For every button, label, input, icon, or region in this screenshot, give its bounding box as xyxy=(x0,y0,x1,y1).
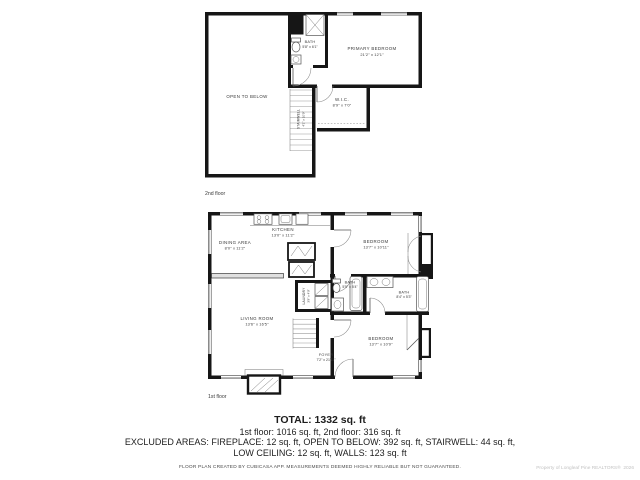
room-dims-dining: 8'0" x 11'2" xyxy=(225,246,246,251)
room-label-bath-center: BATH xyxy=(345,281,356,285)
floor-label-2nd: 2nd floor xyxy=(205,191,225,197)
floor-areas-text: 1st floor: 1016 sq. ft, 2nd floor: 316 s… xyxy=(0,427,640,438)
room-label-wic: W.I.C. xyxy=(335,97,349,102)
watermark-text: Property of Longleaf Pine REALTORS® 2026 xyxy=(536,466,634,471)
room-label-bedroom-top: BEDROOM xyxy=(363,239,388,244)
room-label-dining: DINING AREA xyxy=(219,240,251,245)
floor-plan-1st-floor: KITCHEN 13'0" x 11'2" DINING AREA 8'0" x… xyxy=(195,200,445,410)
room-dims-kitchen: 13'0" x 11'2" xyxy=(272,233,295,238)
room-label-open-to-below: OPEN TO BELOW xyxy=(226,94,268,99)
sink-icon xyxy=(291,55,301,64)
room-dims-bedroom-top: 13'7" x 10'11" xyxy=(363,245,389,250)
floor-plan-page: OPEN TO BELOW PRIMARY BEDROOM 21'2" x 12… xyxy=(0,0,640,480)
bedroom-bottom-door-arc xyxy=(334,320,351,337)
room-dims-bath-right: 8'4" x 5'3" xyxy=(396,295,412,299)
room-label-bath-2nd: BATH xyxy=(305,40,316,44)
shower-icon xyxy=(306,15,324,36)
excluded-areas-line2: LOW CEILING: 12 sq. ft, WALLS: 123 sq. f… xyxy=(0,448,640,459)
room-label-primary-bedroom: PRIMARY BEDROOM xyxy=(347,46,396,51)
area-summary: TOTAL: 1332 sq. ft 1st floor: 1016 sq. f… xyxy=(0,414,640,458)
total-area-text: TOTAL: 1332 sq. ft xyxy=(0,414,640,427)
closet-door-bottom-bedroom xyxy=(407,315,419,350)
room-dims-stairwell: 4'1" x 10'9" xyxy=(302,111,306,126)
hall-closets xyxy=(288,243,315,277)
room-dims-wic: 8'9" x 7'0" xyxy=(333,103,352,108)
room-dims-laundry: 3'9" x 4'9" xyxy=(307,289,311,303)
room-dims-bath-center: 5'5" x 5'4" xyxy=(342,285,358,289)
toilet-icon xyxy=(292,38,301,52)
bedroom-top-door-arc xyxy=(334,230,351,247)
room-dims-bath-2nd: 5'8" x 6'1" xyxy=(302,45,318,49)
kitchen-appliances xyxy=(250,214,330,226)
floor-plan-2nd-floor: OPEN TO BELOW PRIMARY BEDROOM 21'2" x 12… xyxy=(195,5,445,205)
room-label-stairwell: STAIRWELL xyxy=(297,109,301,129)
room-label-bedroom-bottom: BEDROOM xyxy=(368,336,393,341)
chimney xyxy=(291,15,304,35)
floor-label-1st: 1st floor xyxy=(208,394,227,400)
room-dims-foyer: 7'2" x 21'11" xyxy=(317,358,337,362)
room-dims-primary-bedroom: 21'2" x 12'1" xyxy=(360,52,384,57)
excluded-areas-line1: EXCLUDED AREAS: FIREPLACE: 12 sq. ft, OP… xyxy=(0,437,640,448)
room-label-living: LIVING ROOM xyxy=(240,316,273,321)
wic-door-arc xyxy=(317,86,333,102)
stairs-1st-floor xyxy=(293,319,316,349)
room-label-foyer: FOYER xyxy=(319,353,333,357)
laundry-room xyxy=(295,280,331,312)
room-dims-bedroom-bottom: 13'7" x 10'9" xyxy=(369,342,393,347)
entry-door-arc xyxy=(335,359,353,377)
bath-door-arc xyxy=(293,68,311,86)
room-dims-living: 13'6" x 16'5" xyxy=(245,322,269,327)
room-label-laundry: LAUNDRY xyxy=(302,287,306,305)
room-label-bath-right: BATH xyxy=(399,291,410,295)
room-label-kitchen: KITCHEN xyxy=(272,227,294,232)
fireplace xyxy=(245,370,283,394)
half-wall-bench xyxy=(212,274,284,279)
bath-right-door-arc xyxy=(370,298,385,313)
